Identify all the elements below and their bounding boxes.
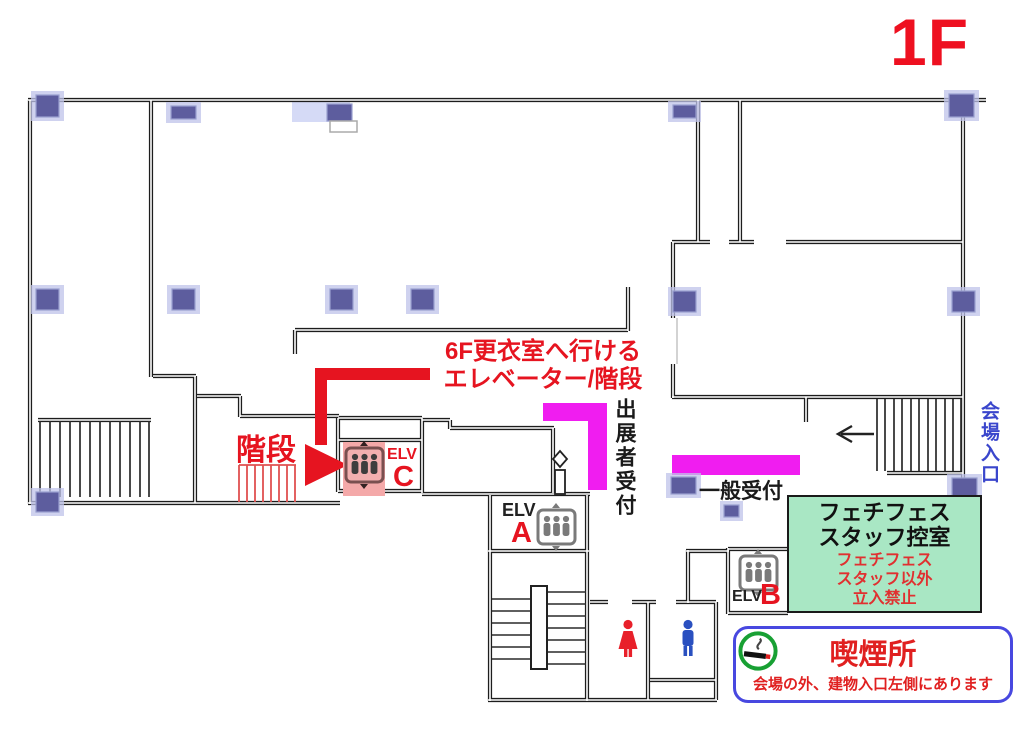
elevator-c-icon bbox=[343, 441, 385, 496]
staff-room-title-line2: スタッフ控室 bbox=[789, 525, 980, 550]
smoking-area-title: 喫煙所 bbox=[829, 631, 916, 673]
staff-room-box: フェチフェス スタッフ控室 フェチフェス スタッフ以外 立入禁止 bbox=[787, 495, 982, 613]
staff-room-notice-line1: フェチフェス bbox=[789, 552, 980, 569]
reception-fixture bbox=[553, 451, 567, 494]
elevator-b-letter: B bbox=[760, 579, 781, 612]
red-staircase bbox=[239, 465, 296, 502]
elevator-a-letter: A bbox=[511, 517, 532, 550]
staff-room-notice-line2: スタッフ以外 bbox=[789, 571, 980, 588]
elevator-c-letter: C bbox=[393, 461, 414, 494]
elevator-a-icon bbox=[538, 503, 575, 551]
entrance-staircase bbox=[877, 399, 961, 471]
stairs-label: 階段 bbox=[236, 425, 296, 469]
male-toilet-icon bbox=[683, 620, 694, 656]
left-staircase bbox=[40, 421, 149, 497]
smoking-icon bbox=[736, 629, 780, 673]
venue-entrance-label: 会場入口 bbox=[975, 401, 1002, 485]
entrance-arrow-icon bbox=[838, 426, 874, 442]
route-note-line1: 6F更衣室へ行ける bbox=[398, 338, 688, 366]
route-note: 6F更衣室へ行ける エレベーター/階段 bbox=[398, 338, 688, 394]
general-reception-label: 一般受付 bbox=[699, 475, 783, 505]
general-reception-area bbox=[672, 455, 800, 475]
route-note-line2: エレベーター/階段 bbox=[398, 366, 688, 394]
smoking-area-note: 会場の外、建物入口左側にあります bbox=[753, 673, 993, 694]
floor-plan: 1F 6F更衣室へ行ける エレベーター/階段 階段 ELV C ELV A EL… bbox=[0, 0, 1024, 739]
staff-room-title-line1: フェチフェス bbox=[789, 500, 980, 525]
elevator-b-label: ELV bbox=[732, 588, 762, 606]
staff-room-notice-line3: 立入禁止 bbox=[789, 590, 980, 607]
center-staircase bbox=[492, 586, 586, 669]
exhibitor-reception-label: 出展者受付 bbox=[609, 398, 639, 518]
smoking-area-header: 喫煙所 bbox=[829, 631, 916, 673]
female-toilet-icon bbox=[619, 620, 638, 657]
pillars bbox=[31, 90, 982, 521]
floor-label: 1F bbox=[890, 4, 969, 80]
smoking-area-box: 喫煙所 会場の外、建物入口左側にあります bbox=[733, 626, 1013, 703]
